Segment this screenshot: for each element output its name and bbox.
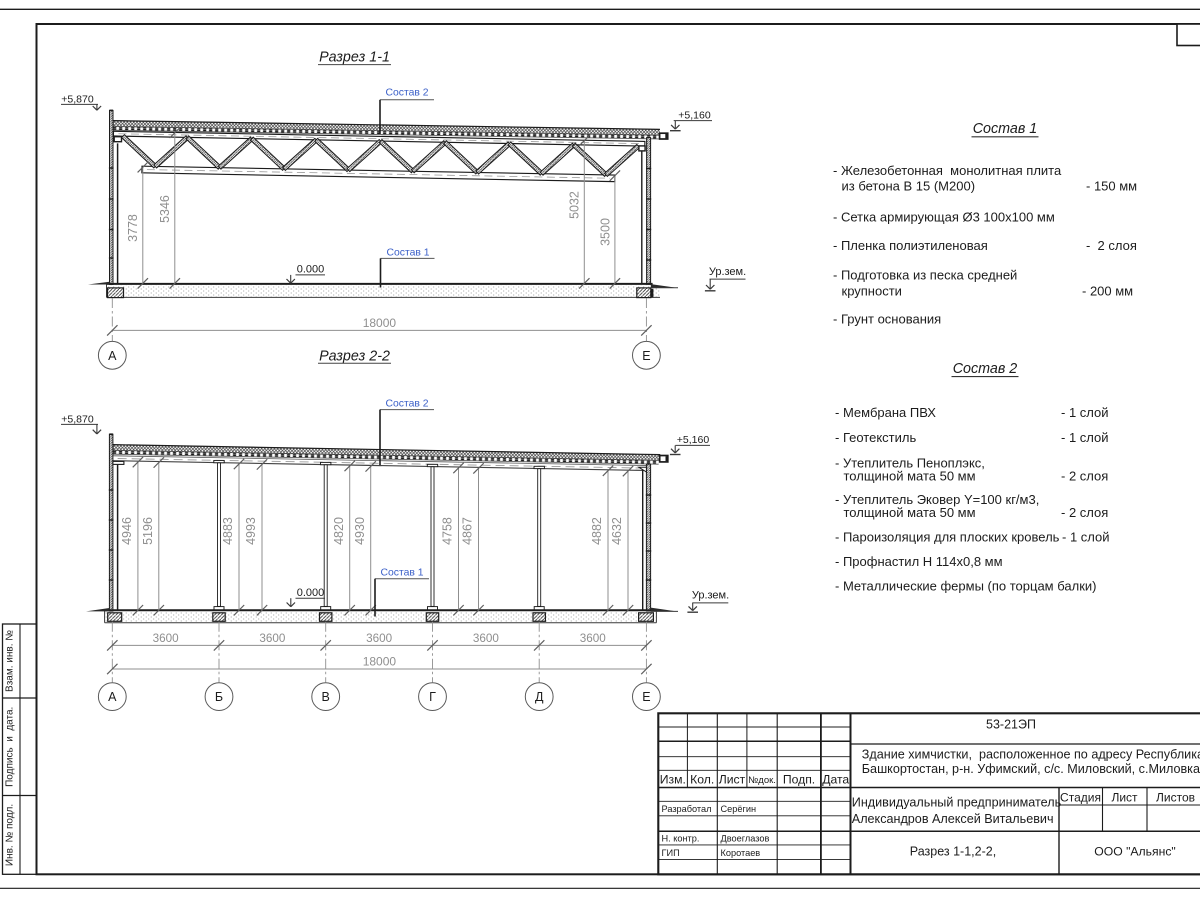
svg-text:3600: 3600 xyxy=(153,632,180,645)
svg-text:4632: 4632 xyxy=(610,517,624,545)
svg-text:ГИП: ГИП xyxy=(662,848,680,858)
svg-text:+5,870: +5,870 xyxy=(61,413,94,425)
svg-text:Состав 1: Состав 1 xyxy=(973,121,1038,137)
svg-text:- Подготовка из песка средней: - Подготовка из песка средней xyxy=(833,268,1017,283)
svg-text:Коротаев: Коротаев xyxy=(721,848,761,858)
svg-text:№док.: №док. xyxy=(748,775,776,786)
svg-text:- Геотекстиль: - Геотекстиль xyxy=(835,430,916,445)
svg-text:3600: 3600 xyxy=(473,632,500,645)
svg-text:0.000: 0.000 xyxy=(297,264,325,276)
svg-text:Состав 1: Состав 1 xyxy=(387,247,430,258)
svg-text:Двоеглазов: Двоеглазов xyxy=(721,834,770,844)
svg-text:крупности: крупности xyxy=(842,283,902,298)
svg-text:Александров Алексей Витальевич: Александров Алексей Витальевич xyxy=(852,812,1054,826)
svg-text:- Сетка армирующая Ø3 100х100: - Сетка армирующая Ø3 100х100 мм xyxy=(833,210,1055,225)
svg-text:+5,160: +5,160 xyxy=(678,109,711,121)
svg-text:4820: 4820 xyxy=(332,517,346,545)
svg-text:4930: 4930 xyxy=(353,517,367,545)
svg-text:3500: 3500 xyxy=(598,218,612,246)
svg-text:3600: 3600 xyxy=(259,632,286,645)
svg-text:Разработал: Разработал xyxy=(662,804,712,814)
svg-text:- 2 слоя: - 2 слоя xyxy=(1086,238,1137,253)
svg-text:5346: 5346 xyxy=(158,195,172,223)
svg-text:Разрез 1-1,2-2,: Разрез 1-1,2-2, xyxy=(910,845,996,859)
svg-text:Стадия: Стадия xyxy=(1060,790,1101,804)
svg-text:Состав 2: Состав 2 xyxy=(386,398,429,409)
svg-text:18000: 18000 xyxy=(363,316,397,330)
svg-text:+5,160: +5,160 xyxy=(677,434,710,446)
svg-text:Индивидуальный предприниматель: Индивидуальный предприниматель xyxy=(852,796,1062,810)
svg-text:Состав 2: Состав 2 xyxy=(386,88,429,99)
svg-text:Башкортостан, р-н. Уфимский, с: Башкортостан, р-н. Уфимский, с/с. Миловс… xyxy=(862,762,1200,776)
svg-text:Д: Д xyxy=(535,690,544,704)
svg-text:3600: 3600 xyxy=(580,632,607,645)
svg-text:+5,870: +5,870 xyxy=(61,93,94,105)
svg-text:Подпись и дата.: Подпись и дата. xyxy=(5,707,16,787)
svg-text:- 150 мм: - 150 мм xyxy=(1086,179,1137,194)
svg-text:Здание химчистки, расположенн: Здание химчистки, расположенное по адрес… xyxy=(862,748,1200,762)
svg-text:4867: 4867 xyxy=(461,517,475,545)
svg-text:Инв. № подл.: Инв. № подл. xyxy=(5,804,16,866)
svg-text:- Металлические фермы (по торц: - Металлические фермы (по торцам балки) xyxy=(835,579,1096,594)
svg-text:5196: 5196 xyxy=(141,517,155,545)
svg-text:Е: Е xyxy=(642,690,650,704)
svg-text:0.000: 0.000 xyxy=(297,587,325,599)
svg-text:Б: Б xyxy=(215,690,223,704)
svg-text:- Пленка полиэтиленовая: - Пленка полиэтиленовая xyxy=(833,238,988,253)
svg-text:5032: 5032 xyxy=(568,191,582,219)
svg-text:- Пароизоляция для плоских кро: - Пароизоляция для плоских кровель xyxy=(835,530,1060,545)
svg-text:- Профнастил Н 114х0,8 мм: - Профнастил Н 114х0,8 мм xyxy=(835,554,1003,569)
svg-text:Н. контр.: Н. контр. xyxy=(662,834,700,844)
svg-text:- Мембрана ПВХ: - Мембрана ПВХ xyxy=(835,405,936,420)
svg-text:толщиной мата 50 мм: толщиной мата 50 мм xyxy=(844,469,976,484)
svg-text:3778: 3778 xyxy=(126,214,140,242)
svg-text:Дата: Дата xyxy=(822,773,849,787)
svg-text:ООО "Альянс": ООО "Альянс" xyxy=(1094,845,1176,859)
svg-text:4946: 4946 xyxy=(120,517,134,545)
svg-text:Листов: Листов xyxy=(1156,790,1195,804)
svg-text:Разрез 2-2: Разрез 2-2 xyxy=(319,348,390,364)
svg-text:- 1 слой: - 1 слой xyxy=(1062,530,1110,545)
svg-text:Состав 2: Состав 2 xyxy=(953,361,1018,377)
svg-text:- Грунт основания: - Грунт основания xyxy=(833,312,941,327)
svg-text:А: А xyxy=(108,349,117,363)
svg-text:Ур.зем.: Ур.зем. xyxy=(709,266,746,278)
svg-text:- 200 мм: - 200 мм xyxy=(1082,283,1133,298)
svg-text:- 2 слоя: - 2 слоя xyxy=(1061,505,1108,520)
svg-text:Ур.зем.: Ур.зем. xyxy=(692,589,729,601)
svg-text:Разрез 1-1: Разрез 1-1 xyxy=(319,50,390,66)
svg-text:18000: 18000 xyxy=(363,655,397,669)
svg-text:Кол.: Кол. xyxy=(690,773,714,787)
svg-text:Состав 1: Состав 1 xyxy=(381,567,424,578)
svg-text:- 1 слой: - 1 слой xyxy=(1061,405,1109,420)
svg-text:4758: 4758 xyxy=(441,517,455,545)
svg-text:Лист: Лист xyxy=(1111,790,1138,804)
svg-text:Взам. инв. №: Взам. инв. № xyxy=(5,630,16,692)
svg-text:Серёгин: Серёгин xyxy=(721,804,757,814)
svg-text:из бетона В 15 (М200): из бетона В 15 (М200) xyxy=(842,179,976,194)
svg-text:Е: Е xyxy=(642,349,650,363)
svg-text:- Железобетонная монолитная п: - Железобетонная монолитная плита xyxy=(833,163,1062,178)
svg-text:Лист: Лист xyxy=(719,773,746,787)
svg-text:Г: Г xyxy=(429,690,436,704)
svg-text:53-21ЭП: 53-21ЭП xyxy=(986,718,1036,732)
svg-text:3600: 3600 xyxy=(366,632,393,645)
svg-text:Изм.: Изм. xyxy=(660,773,686,787)
svg-text:- 1 слой: - 1 слой xyxy=(1061,430,1109,445)
svg-text:4993: 4993 xyxy=(244,517,258,545)
svg-text:- 2 слоя: - 2 слоя xyxy=(1061,469,1108,484)
svg-text:4883: 4883 xyxy=(221,517,235,545)
svg-text:В: В xyxy=(322,690,330,704)
svg-text:4882: 4882 xyxy=(590,517,604,545)
svg-text:Подп.: Подп. xyxy=(783,773,815,787)
svg-text:А: А xyxy=(108,690,117,704)
svg-text:толщиной мата 50 мм: толщиной мата 50 мм xyxy=(844,505,976,520)
